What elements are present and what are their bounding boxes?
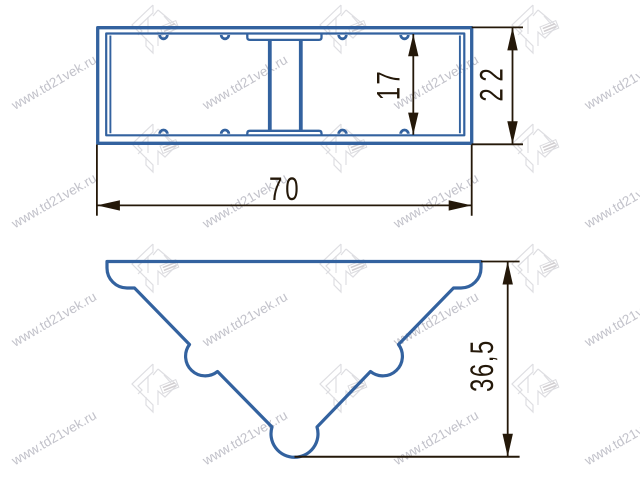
svg-text:17: 17 xyxy=(370,69,406,100)
svg-text:36,5: 36,5 xyxy=(463,339,499,392)
svg-text:22: 22 xyxy=(473,62,509,102)
svg-text:70: 70 xyxy=(269,171,302,207)
